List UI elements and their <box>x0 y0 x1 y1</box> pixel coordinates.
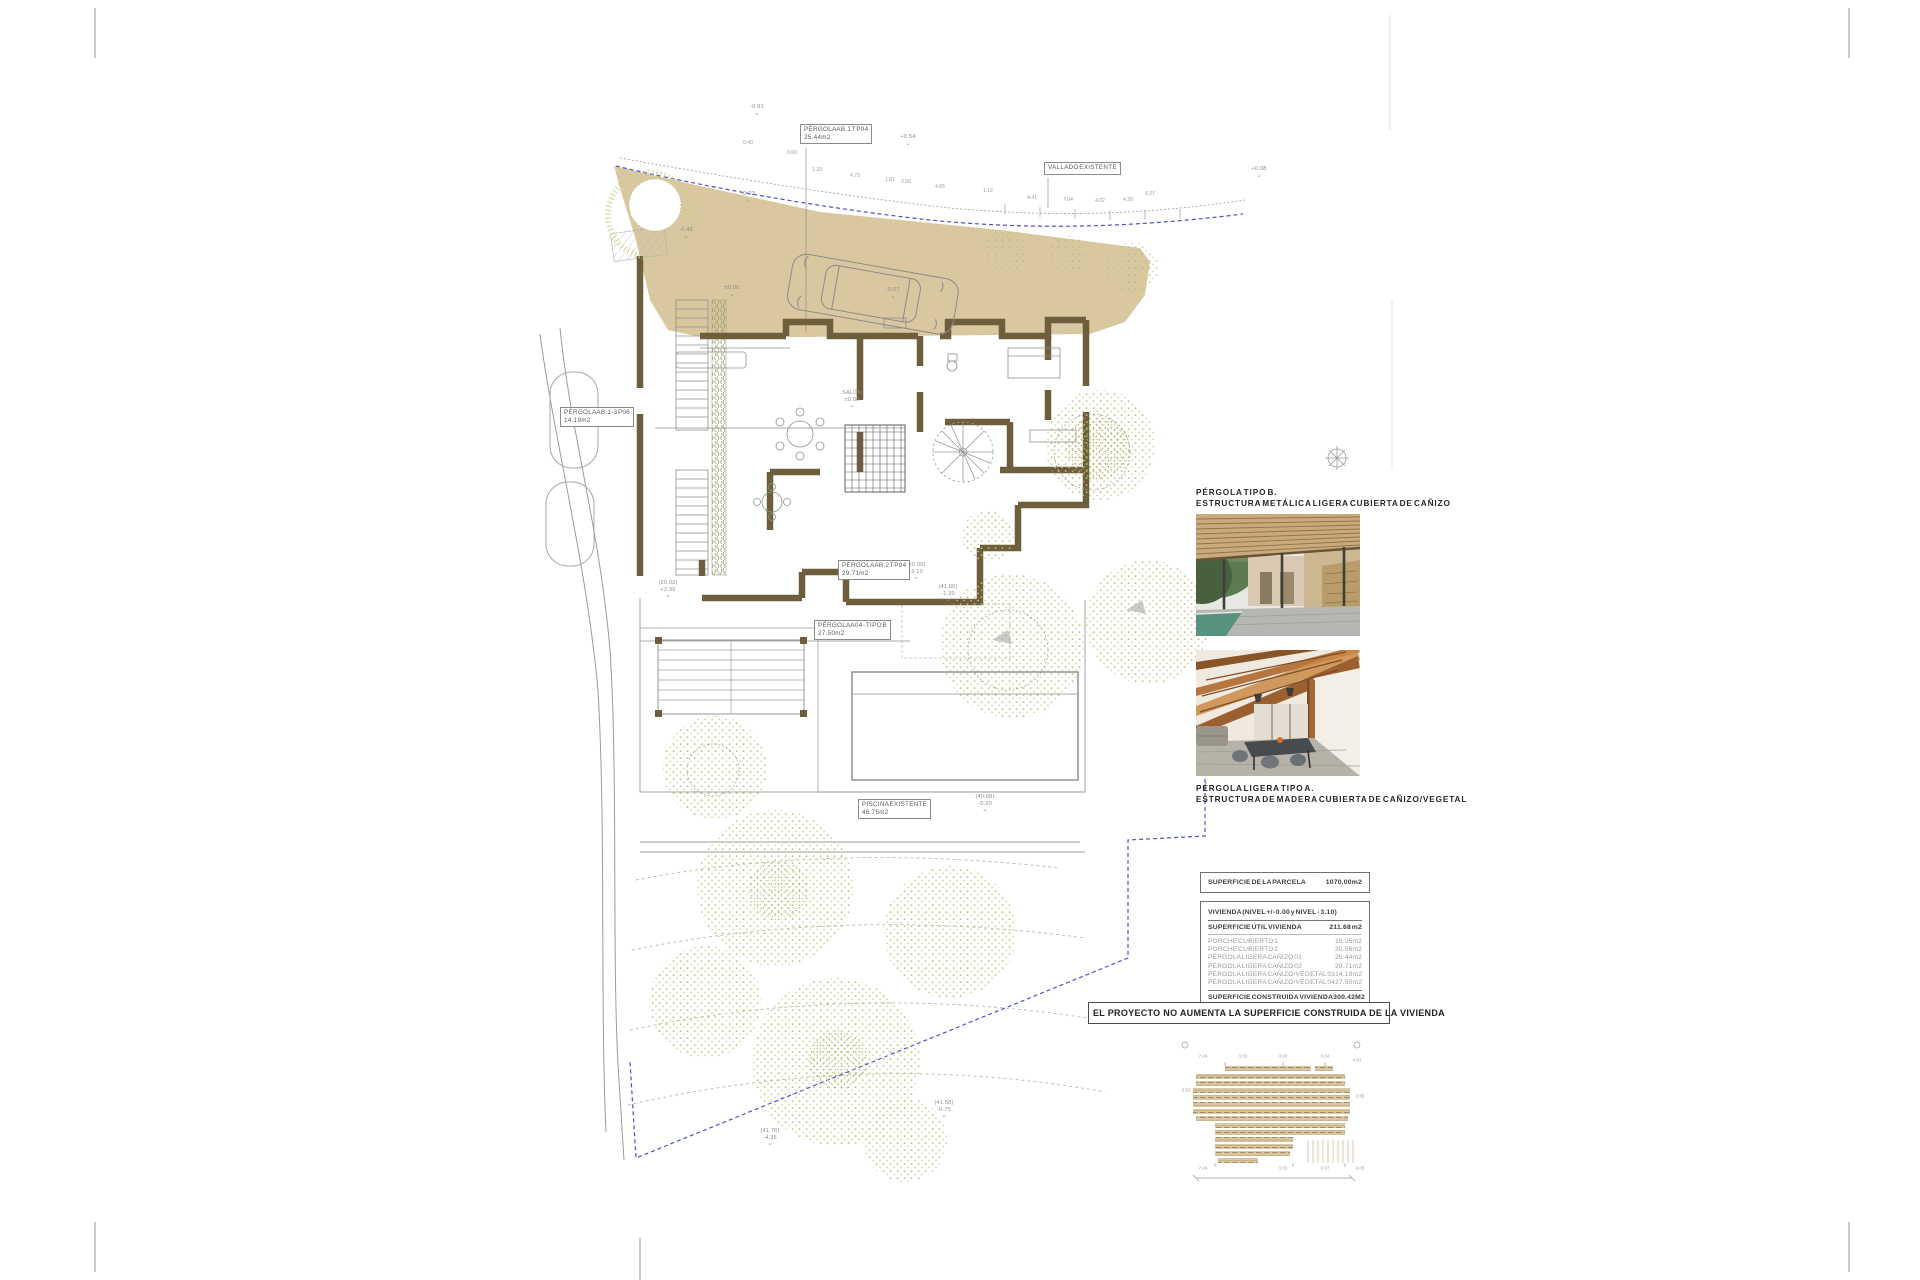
plan-label-piscina-existente: PISCINA EXISTENTE46.75m2 <box>858 799 931 819</box>
superficie-util-value: 211.68 m2 <box>1329 924 1362 931</box>
roof-dimension-text: 4.01 <box>1353 1058 1362 1063</box>
interior-furniture <box>676 318 1076 521</box>
dimension-text: 7.04 <box>1063 197 1073 203</box>
roof-dimension-text: 3.01 <box>1239 1054 1248 1059</box>
roof-dimension-text: 7.04 <box>1199 1054 1208 1059</box>
plan-label-pergola-a04: PÉRGOLA A04 - TIPO B27.50m2 <box>814 620 891 640</box>
dimension-text: 4.41 <box>1027 195 1037 201</box>
roof-dimension-text: 3.52 <box>1182 1088 1191 1093</box>
roof-dimension-text: 3.07 <box>1321 1166 1330 1171</box>
spot-level: -0.45⌄ <box>679 227 693 239</box>
area-row: PÉRGOLA LIGERA CAÑIZO 0125.44m2 <box>1208 954 1362 962</box>
photo1-caption-line2: ESTRUCTURA METÁLICA LIGERA CUBIERTA DE C… <box>1196 499 1396 510</box>
dimension-text: 4.02 <box>1095 198 1105 204</box>
dimension-text: 1.33 <box>812 167 822 173</box>
area-row-value: 27.50m2 <box>1335 979 1362 987</box>
area-row-value: 29.71m2 <box>1335 963 1362 971</box>
parcel-area-value: 1070.00m2 <box>1326 879 1362 886</box>
roof-dimension-text: 3.01 <box>1279 1166 1288 1171</box>
area-breakdown-rows: PORCHE CUBIERTO 115.25m2PORCHE CUBIERTO … <box>1208 935 1362 990</box>
superficie-util-label: SUPERFICIE ÚTIL VIVIENDA <box>1208 924 1302 931</box>
dimension-text: 0.40 <box>743 140 753 146</box>
dimension-text: 0.60 <box>787 150 797 156</box>
dimension-text: 4.28 <box>1123 197 1133 203</box>
dimension-text: 6.27 <box>1145 191 1155 197</box>
exterior-stairs <box>676 300 708 575</box>
spot-level: -0.22⌄ <box>741 191 755 203</box>
site-plan-drawing <box>0 0 1920 1280</box>
spot-level: -0.91⌄ <box>750 104 764 116</box>
area-row-value: 14.19m2 <box>1335 971 1362 979</box>
spot-level: +0.08⌄ <box>1251 166 1266 178</box>
spot-level: (40.08)-0.20⌄ <box>975 794 994 812</box>
superficie-construida-value: 300.42M2 <box>1333 994 1365 1001</box>
area-row-value: 15.25m2 <box>1335 938 1362 946</box>
dimension-text: 4.73 <box>850 173 860 179</box>
roof-dimension-text: 3.04 <box>1321 1054 1330 1059</box>
roof-detail-plan <box>1182 1042 1360 1181</box>
area-row-label: PÉRGOLA LIGERA CAÑIZO 01 <box>1208 954 1302 962</box>
site-plan-sheet: PÉRGOLA TIPO B. ESTRUCTURA METÁLICA LIGE… <box>0 0 1920 1280</box>
area-row-label: PÉRGOLA LIGERA CAÑIZO 02 <box>1208 963 1302 971</box>
superficie-construida-row: SUPERFICIE CONSTRUIDA VIVIENDA 300.42M2 <box>1208 990 1362 1002</box>
survey-symbol <box>1325 446 1349 470</box>
spot-level: (41.58)-0.75⌄ <box>934 1100 953 1118</box>
area-row-value: 20.56m2 <box>1335 946 1362 954</box>
spiral-stair <box>933 422 993 482</box>
roof-dimension-text: 4.05 <box>1356 1166 1365 1171</box>
photo2-caption-line2: ESTRUCTURA DE MADERA CUBIERTA DE CAÑIZO/… <box>1196 795 1396 806</box>
roof-dimension-text: 3.55 <box>1356 1094 1365 1099</box>
areas-table: SUPERFICIE DE LA PARCELA 1070.00m2 VIVIE… <box>1200 872 1370 1009</box>
dimension-text: 2.06 <box>901 179 911 185</box>
photo2-caption-line1: PÉRGOLA LIGERA TIPO A. <box>1196 784 1396 795</box>
dimension-text: 1.12 <box>983 188 993 194</box>
area-row-label: PÉRGOLA LIGERA CAÑIZO/VEGETAL 04 <box>1208 979 1335 987</box>
spot-level: (41.76)-4.35⌄ <box>760 1128 779 1146</box>
superficie-construida-label: SUPERFICIE CONSTRUIDA VIVIENDA <box>1208 994 1333 1001</box>
project-note-banner: EL PROYECTO NO AUMENTA LA SUPERFICIE CON… <box>1088 1002 1390 1024</box>
plan-label-pergola-ab2: PÉRGOLA AB.2 T P0429.71m2 <box>838 560 910 580</box>
spot-level: -0.07⌄ <box>886 287 900 299</box>
area-row-label: PÉRGOLA LIGERA CAÑIZO/VEGETAL 03 <box>1208 971 1335 979</box>
plan-label-pergola-ab3: PÉRGOLA AB.1-3 P0614.19m2 <box>560 407 634 427</box>
area-row-value: 25.44m2 <box>1335 954 1362 962</box>
spot-level: SALÓN±0.00⌄ <box>842 390 862 408</box>
spot-level: +0.54⌄ <box>900 134 915 146</box>
spot-level: (20.02)+2.30⌄ <box>658 580 677 598</box>
road-kerbs <box>540 328 624 1160</box>
spot-level: ±0.00⌄ <box>725 285 740 297</box>
vivienda-header: VIVIENDA (NIVEL +/- 0.00 y NIVEL - 3.10) <box>1208 907 1362 920</box>
area-row: PORCHE CUBIERTO 115.25m2 <box>1208 938 1362 946</box>
area-row: PÉRGOLA LIGERA CAÑIZO/VEGETAL 0314.19m2 <box>1208 971 1362 979</box>
photo-pergola-ligera-tipo-a <box>1196 650 1360 776</box>
plan-label-pergola-ab1: PÉRGOLA AB.1 T P0425.44m2 <box>800 124 872 144</box>
dimension-text: 1.81 <box>885 177 895 183</box>
area-row: PÉRGOLA LIGERA CAÑIZO/VEGETAL 0427.50m2 <box>1208 979 1362 987</box>
photo-pergola-tipo-b <box>1196 514 1360 636</box>
area-row: PÉRGOLA LIGERA CAÑIZO 0229.71m2 <box>1208 963 1362 971</box>
area-row-label: PORCHE CUBIERTO 1 <box>1208 938 1278 946</box>
roof-dimension-text: 4.03 <box>1279 1054 1288 1059</box>
superficie-util-row: SUPERFICIE ÚTIL VIVIENDA 211.68 m2 <box>1208 920 1362 935</box>
parcel-area-label: SUPERFICIE DE LA PARCELA <box>1208 879 1306 886</box>
plan-label-vallado-existente: VALLADO EXISTENTE <box>1044 162 1121 175</box>
roof-dimension-text: 7.04 <box>1199 1166 1208 1171</box>
dimension-text: 4.65 <box>935 184 945 190</box>
spot-level: (41.60)-1.30⌄ <box>938 584 957 602</box>
photo1-caption-line1: PÉRGOLA TIPO B. <box>1196 488 1396 499</box>
vivienda-area-box: VIVIENDA (NIVEL +/- 0.00 y NIVEL - 3.10)… <box>1200 901 1370 1009</box>
planting-strip <box>712 300 726 575</box>
deck-grid <box>845 425 905 492</box>
parcel-area-row: SUPERFICIE DE LA PARCELA 1070.00m2 <box>1200 872 1370 893</box>
